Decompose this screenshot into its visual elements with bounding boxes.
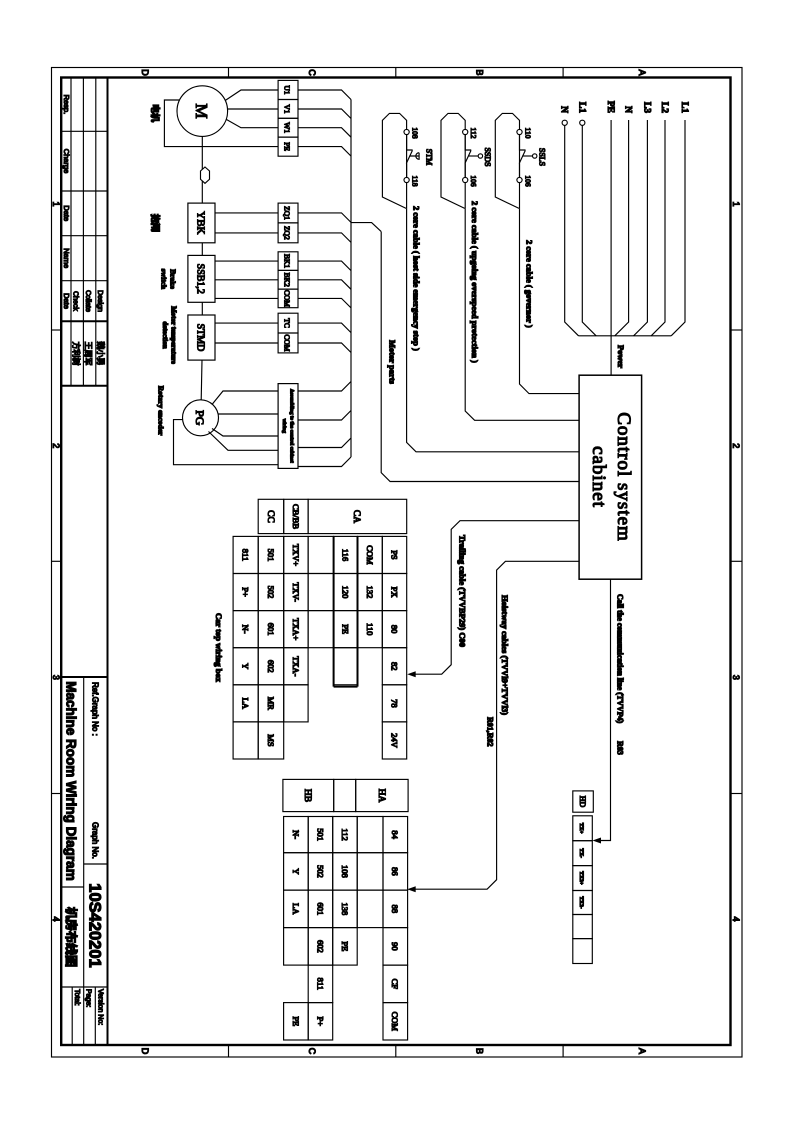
svg-text:Brake: Brake [169,269,178,289]
svg-text:2 core cable ( host side emerg: 2 core cable ( host side emergency stop … [412,206,422,351]
svg-text:Hoistway cables (TVVl9+TVVl3): Hoistway cables (TVVl9+TVVl3) [500,595,510,715]
svg-text:U1: U1 [283,85,292,94]
svg-text:Ref.Graph No :: Ref.Graph No : [91,682,100,736]
svg-text:Resp.: Resp. [62,95,71,115]
svg-text:N: N [559,106,569,113]
svg-text:116: 116 [341,549,351,561]
svg-text:MR: MR [266,697,276,711]
svg-text:SSLS: SSLS [538,148,547,166]
svg-text:魏小勇: 魏小勇 [96,342,106,366]
svg-text:Version No:: Version No: [97,989,104,1025]
svg-text:PS: PS [390,550,400,560]
svg-text:ZQ1: ZQ1 [283,206,292,220]
svg-text:机房布线图: 机房布线图 [64,907,79,967]
svg-text:Graph No.: Graph No. [91,822,100,859]
svg-text:抱闸: 抱闸 [150,214,161,232]
svg-text:106: 106 [469,175,478,187]
svg-text:PE: PE [283,142,292,151]
svg-text:Date: Date [62,293,71,309]
svg-text:TX-: TX- [578,848,584,858]
svg-text:CA: CA [351,510,361,523]
svg-text:STMD: STMD [195,324,206,352]
svg-text:4: 4 [731,916,741,921]
svg-text:COM: COM [390,1012,400,1032]
svg-text:LA: LA [241,698,251,710]
svg-text:1: 1 [51,201,61,206]
svg-text:TXV-: TXV- [291,582,301,602]
svg-text:SSDS: SSDS [483,147,492,166]
svg-text:84: 84 [390,830,400,839]
svg-text:110: 110 [524,128,533,139]
svg-text:CC: CC [265,510,275,523]
svg-text:PE: PE [341,624,351,634]
svg-text:Rotary encoder: Rotary encoder [157,386,166,436]
svg-text:ZQ2: ZQ2 [283,226,292,240]
svg-text:108: 108 [340,865,350,878]
svg-text:601: 601 [315,902,325,915]
svg-text:Check: Check [72,291,79,311]
svg-text:Trailing cable (TVVBP29) C00: Trailing cable (TVVBP29) C00 [458,535,468,647]
svg-text:501: 501 [315,828,325,841]
svg-text:PG: PG [193,410,207,426]
svg-text:C: C [307,1048,317,1055]
svg-text:Power: Power [616,345,626,368]
svg-text:COM: COM [283,334,292,351]
svg-text:24V: 24V [390,733,400,749]
svg-text:112: 112 [469,128,478,139]
svg-text:Call the communication line (T: Call the communication line (TVVP4) [616,594,625,724]
svg-text:Assembling to the control cabi: Assembling to the control cabinet [289,389,295,463]
svg-text:BK1: BK1 [283,254,292,268]
svg-text:86: 86 [390,867,400,876]
svg-text:P+: P+ [315,1017,325,1027]
svg-text:Total:: Total: [73,989,80,1006]
svg-text:A: A [637,69,647,75]
svg-text:STM: STM [425,149,434,165]
svg-text:PE: PE [340,941,350,951]
svg-text:R03: R03 [616,741,625,755]
svg-text:Page:: Page: [85,989,92,1007]
svg-text:wiring: wiring [281,419,287,434]
svg-text:88: 88 [390,905,400,914]
svg-text:Car top wiring box: Car top wiring box [214,613,224,683]
svg-text:PX: PX [390,587,400,598]
svg-text:CB/BB: CB/BB [291,504,301,529]
svg-text:R01,R02: R01,R02 [486,717,495,747]
svg-text:3: 3 [51,675,61,680]
svg-text:90: 90 [390,942,400,951]
svg-text:王周军: 王周军 [84,342,93,366]
svg-text:HB: HB [302,789,312,802]
svg-text:V1: V1 [283,104,292,113]
svg-text:L1: L1 [576,102,586,113]
svg-text:602: 602 [266,660,276,673]
svg-text:TC: TC [283,318,292,328]
svg-text:TX+: TX+ [578,823,584,834]
svg-text:A: A [637,1048,647,1054]
svg-text:4: 4 [51,916,61,921]
svg-text:112: 112 [340,828,350,840]
svg-text:D: D [140,69,150,76]
svg-text:1: 1 [731,201,741,206]
svg-text:LA: LA [291,903,301,915]
svg-text:TX2+: TX2+ [578,871,584,885]
svg-text:L3: L3 [641,102,651,113]
svg-text:switch: switch [160,269,169,290]
svg-text:B: B [475,1048,485,1054]
svg-text:M: M [192,104,211,119]
svg-text:10S420201: 10S420201 [86,883,104,967]
svg-text:602: 602 [315,940,325,953]
svg-text:601: 601 [266,623,276,636]
svg-text:detection: detection [161,321,169,348]
svg-text:2: 2 [731,443,741,448]
svg-text:TXA+: TXA+ [291,618,301,640]
svg-text:Y: Y [241,663,251,669]
svg-text:3: 3 [731,675,741,680]
svg-text:MS: MS [266,734,276,747]
svg-text:N-: N- [241,625,251,634]
svg-text:L2: L2 [659,102,669,113]
svg-text:811: 811 [315,978,325,990]
svg-text:B: B [475,69,485,75]
svg-text:106: 106 [524,175,533,187]
svg-text:N-: N- [291,830,301,839]
svg-text:CF: CF [390,979,400,990]
svg-text:电机: 电机 [150,104,161,122]
svg-text:501: 501 [266,549,276,562]
svg-text:YBK: YBK [195,211,207,234]
svg-text:Control system: Control system [613,412,634,542]
svg-text:Date: Date [62,205,71,221]
svg-text:Name: Name [62,248,71,268]
svg-text:cabinet: cabinet [588,446,609,508]
svg-text:Motor temperature: Motor temperature [170,306,178,364]
svg-text:HD: HD [578,796,587,808]
svg-text:82: 82 [390,662,400,671]
svg-text:N: N [623,106,633,113]
svg-text:HA: HA [376,789,386,803]
svg-text:811: 811 [241,549,251,561]
svg-text:78: 78 [390,699,400,708]
svg-text:PE: PE [291,1016,301,1026]
svg-text:PE: PE [605,101,615,113]
svg-text:Y: Y [291,868,301,874]
svg-text:120: 120 [341,586,351,599]
svg-text:W1: W1 [283,122,292,133]
svg-text:COM: COM [365,545,375,565]
svg-text:2 core cable ( governor ): 2 core cable ( governor ) [525,240,535,328]
svg-text:P+: P+ [241,587,251,597]
svg-text:502: 502 [266,586,276,599]
svg-text:2: 2 [51,443,61,448]
svg-text:Charge: Charge [62,149,71,174]
svg-text:138: 138 [340,902,350,915]
svg-text:BK2: BK2 [283,273,292,287]
svg-text:108: 108 [411,127,420,139]
svg-text:Motor parts: Motor parts [388,340,398,385]
svg-text:TXV+: TXV+ [291,544,301,566]
svg-text:502: 502 [315,865,325,878]
svg-text:C: C [307,69,317,76]
svg-text:Machine Room Wiring Diagram: Machine Room Wiring Diagram [64,681,79,880]
svg-text:TX2-: TX2- [578,896,584,908]
svg-text:2 core cable ( upgoing overspe: 2 core cable ( upgoing overspeed protect… [470,201,480,363]
svg-text:方利树: 方利树 [71,342,81,366]
svg-text:TXA-: TXA- [291,656,301,676]
svg-text:110: 110 [365,623,375,635]
svg-text:Collate: Collate [84,290,91,312]
svg-text:D: D [140,1048,150,1055]
svg-text:L1: L1 [679,102,689,113]
svg-text:SSB1,2: SSB1,2 [195,264,206,294]
svg-text:COM: COM [283,290,292,307]
svg-text:132: 132 [365,586,375,599]
svg-text:118: 118 [411,176,420,187]
svg-text:80: 80 [390,625,400,634]
svg-text:Design: Design [96,290,103,312]
